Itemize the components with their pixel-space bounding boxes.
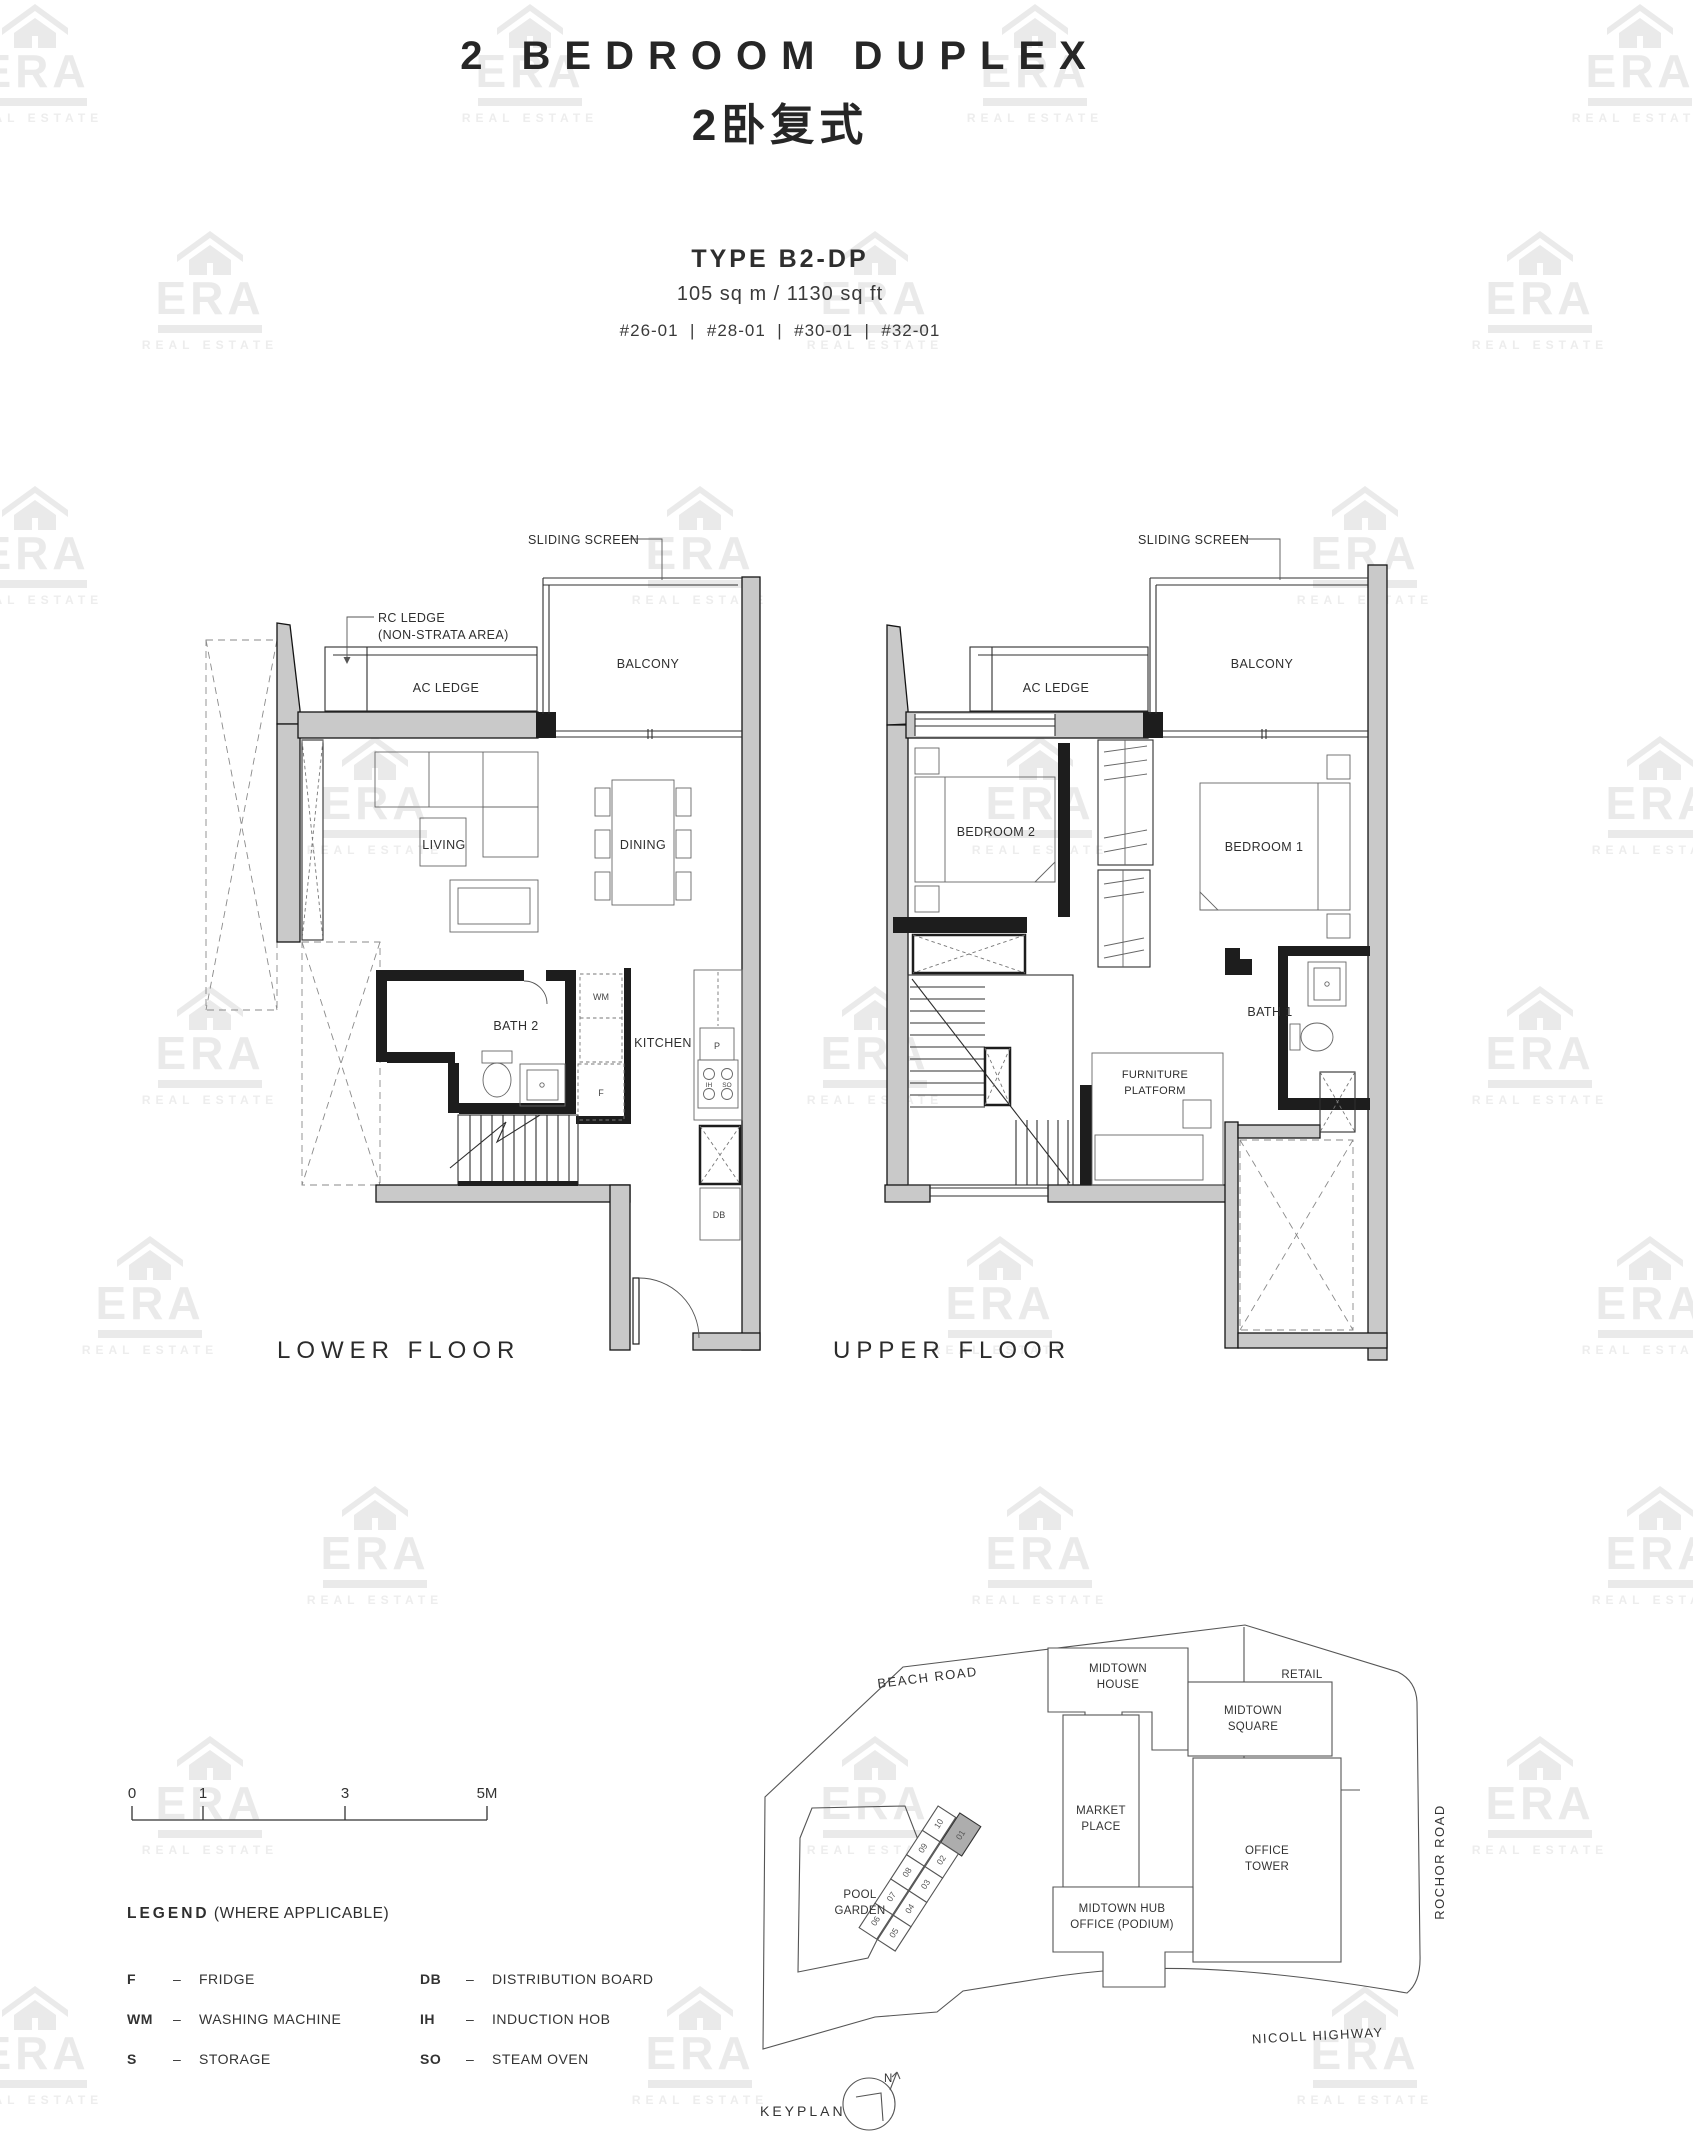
legend-label: WASHING MACHINE [199,2011,341,2027]
storage-void-box [913,935,1025,973]
upper-void [1240,1140,1353,1330]
era-watermark-brand: ERA [0,530,110,576]
era-house-icon [1627,1486,1693,1530]
label-wm: WM [593,992,609,1002]
residential-tower-units: 10 09 08 07 06 01 02 03 04 05 [859,1801,981,1953]
label-so: SO [722,1082,731,1089]
scale-tick-1: 1 [199,1785,207,1802]
page-title: 2 BEDROOM DUPLEX [0,34,1560,79]
legend-label: INDUCTION HOB [492,2011,611,2027]
scale-bar-line [132,1806,487,1820]
legend-title: LEGEND (WHERE APPLICABLE) [127,1905,727,1923]
label-pantry: P [714,1041,720,1051]
legend-item-storage: S–STORAGE [127,2039,420,2079]
era-watermark: ERAREAL ESTATE [0,1986,110,2107]
label-market-place-2: PLACE [1081,1821,1120,1833]
label-midtown-square-2: SQUARE [1228,1721,1278,1733]
label-pool-garden-2: GARDEN [834,1905,885,1917]
era-watermark-tagline: REAL ESTATE [1565,111,1693,125]
scale-bar: 0 1 3 5M [118,1782,498,1827]
era-house-icon [177,1736,243,1780]
era-watermark-bar [0,580,87,588]
label-beach-road: BEACH ROAD [877,1664,979,1691]
stairs-lower [450,1115,578,1186]
label-market-place-1: MARKET [1076,1805,1126,1817]
era-watermark-bar [1608,830,1693,838]
label-living: LIVING [422,838,465,852]
era-watermark-brand: ERA [1575,1280,1693,1326]
legend-dash: – [466,1971,492,1987]
building-market-place [1063,1715,1139,1887]
era-house-icon [1607,4,1673,48]
label-bath1: BATH 1 [1247,1005,1292,1019]
era-watermark: ERAREAL ESTATE [0,486,110,607]
era-watermark-bar [98,1330,202,1338]
legend-dash: – [173,2051,199,2067]
label-furniture-platform-1: FURNITURE [1122,1069,1188,1081]
era-watermark: ERAREAL ESTATE [1575,1236,1693,1357]
label-bedroom2: BEDROOM 2 [957,825,1036,839]
label-retail: RETAIL [1281,1669,1323,1681]
legend-dash: – [466,2051,492,2067]
era-house-icon [1007,1486,1073,1530]
era-watermark-tagline: REAL ESTATE [1575,1343,1693,1357]
era-watermark-tagline: REAL ESTATE [1465,1093,1615,1107]
scale-tick-0: 0 [128,1785,136,1802]
era-watermark-brand: ERA [0,2030,110,2076]
closet-shaft [302,740,323,940]
scale-tick-3: 3 [341,1785,349,1802]
lower-walls [277,577,760,1350]
label-midtown-house-2: HOUSE [1097,1679,1139,1691]
legend-item-fridge: F–FRIDGE [127,1959,420,1999]
era-watermark: ERAREAL ESTATE [1465,986,1615,1107]
keyplan: 10 09 08 07 06 01 02 03 04 05 MIDTOWN HO… [750,1600,1693,2153]
label-dining: DINING [620,838,666,852]
era-watermark-bar [323,1580,427,1588]
era-house-icon [2,486,68,530]
legend-label: STEAM OVEN [492,2051,589,2067]
lower-annotations [344,539,663,664]
era-watermark-tagline: REAL ESTATE [300,1593,450,1607]
label-ac-ledge-lower: AC LEDGE [413,681,479,695]
label-bath2: BATH 2 [493,1019,538,1033]
era-house-icon [1627,736,1693,780]
entrance-door [633,1278,699,1344]
label-sliding-screen-lower: SLIDING SCREEN [528,533,639,547]
era-watermark: ERAREAL ESTATE [965,1486,1115,1607]
wardrobes [1098,740,1153,967]
building-midtown-square [1188,1682,1332,1756]
legend-subtitle: (WHERE APPLICABLE) [214,1905,389,1922]
legend-abbr: F [127,1971,173,1987]
era-watermark-brand: ERA [1565,48,1693,94]
legend-item-so: SO–STEAM OVEN [420,2039,727,2079]
era-watermark-brand: ERA [1585,780,1693,826]
label-db: DB [713,1210,726,1220]
legend-abbr: SO [420,2051,466,2067]
label-rochor-road: ROCHOR ROAD [1432,1804,1447,1919]
services-shaft [700,1126,740,1240]
bath1-walls-fixtures [1225,946,1370,1110]
unit-area: 105 sq m / 1130 sq ft [0,283,1560,306]
building-office-tower [1193,1758,1341,1962]
upper-ac-ledge [970,647,1148,711]
upper-floor-plan: SLIDING SCREEN AC LEDGE BALCONY BEDROOM … [820,520,1400,1370]
label-sliding-screen-upper: SLIDING SCREEN [1138,533,1249,547]
era-house-icon [1507,986,1573,1030]
scale-tick-5m: 5M [477,1785,498,1802]
era-watermark-brand: ERA [965,1530,1115,1576]
legend-dash: – [173,1971,199,1987]
era-house-icon [2,1986,68,2030]
label-office-tower-1: OFFICE [1245,1845,1289,1857]
bath2-fixtures [482,1051,565,1106]
era-watermark: ERAREAL ESTATE [1585,736,1693,857]
unit-numbers: #26-01 | #28-01 | #30-01 | #32-01 [0,321,1560,341]
era-watermark-tagline: REAL ESTATE [1585,843,1693,857]
era-watermark-bar [158,1830,262,1838]
era-watermark-bar [648,2080,752,2088]
label-midtown-hub-1: MIDTOWN HUB [1079,1903,1166,1915]
era-watermark-bar [1608,1580,1693,1588]
floorplan-brochure-page: { "header": { "title": "2 BEDROOM DUPLEX… [0,0,1693,2153]
label-balcony-lower: BALCONY [617,657,680,671]
label-midtown-house-1: MIDTOWN [1089,1663,1147,1675]
legend-item-ih: IH–INDUCTION HOB [420,1999,727,2039]
label-kitchen: KITCHEN [634,1036,692,1050]
label-bedroom1: BEDROOM 1 [1225,840,1304,854]
label-midtown-square-1: MIDTOWN [1224,1705,1282,1717]
unit-type: TYPE B2-DP [0,245,1560,274]
legend-label: FRIDGE [199,1971,255,1987]
label-balcony-upper: BALCONY [1231,657,1294,671]
label-furniture-platform-2: PLATFORM [1124,1085,1185,1097]
era-watermark-brand: ERA [300,1530,450,1576]
era-house-icon [1617,1236,1683,1280]
legend-item-db: DB–DISTRIBUTION BOARD [420,1959,727,1999]
legend-item-wm: WM–WASHING MACHINE [127,1999,420,2039]
era-watermark-brand: ERA [1465,1030,1615,1076]
era-watermark-brand: ERA [1585,1530,1693,1576]
label-rc-ledge: RC LEDGE [378,611,445,625]
lower-floor-title: LOWER FLOOR [277,1337,520,1364]
page-title-chinese: 2卧复式 [0,89,1560,153]
era-watermark-bar [1488,1080,1592,1088]
era-watermark-tagline: REAL ESTATE [0,593,110,607]
era-house-icon [342,1486,408,1530]
building-midtown-hub [1053,1887,1193,1987]
legend-abbr: IH [420,2011,466,2027]
legend-items: F–FRIDGE DB–DISTRIBUTION BOARD WM–WASHIN… [127,1959,727,2079]
legend-abbr: S [127,2051,173,2067]
label-pool-garden-1: POOL [843,1889,876,1901]
era-watermark-tagline: REAL ESTATE [0,2093,110,2107]
era-watermark-bar [988,1580,1092,1588]
era-house-icon [117,1236,183,1280]
legend: LEGEND (WHERE APPLICABLE) F–FRIDGE DB–DI… [127,1905,727,2079]
legend-title-text: LEGEND [127,1905,210,1922]
legend-label: STORAGE [199,2051,271,2067]
era-watermark-bar [1588,98,1692,106]
lower-floor-plan: SLIDING SCREEN RC LEDGE (NON-STRATA AREA… [200,520,770,1370]
legend-abbr: WM [127,2011,173,2027]
era-watermark: ERAREAL ESTATE [1565,4,1693,125]
era-watermark: ERAREAL ESTATE [300,1486,450,1607]
label-midtown-hub-2: OFFICE (PODIUM) [1070,1919,1174,1931]
legend-label: DISTRIBUTION BOARD [492,1971,653,1987]
lower-ledges [325,647,537,711]
legend-abbr: DB [420,1971,466,1987]
label-ih: IH [706,1082,713,1089]
upper-walls [885,565,1387,1360]
era-watermark-tagline: REAL ESTATE [135,1843,285,1857]
era-watermark-bar [1598,1330,1693,1338]
label-ac-ledge-upper: AC LEDGE [1023,681,1089,695]
label-rc-ledge-2: (NON-STRATA AREA) [378,628,509,642]
keyplan-caption: KEYPLAN [760,2103,846,2119]
north-indicator: N [843,2072,900,2130]
upper-floor-title: UPPER FLOOR [833,1337,1071,1364]
north-letter: N [884,2073,893,2085]
era-watermark: ERAREAL ESTATE [1585,1486,1693,1607]
label-office-tower-2: TOWER [1245,1861,1289,1873]
legend-dash: – [466,2011,492,2027]
era-watermark-bar [0,2080,87,2088]
header: 2 BEDROOM DUPLEX 2卧复式 TYPE B2-DP 105 sq … [0,0,1560,341]
label-fridge: F [598,1088,604,1098]
label-nicoll-highway: NICOLL HIGHWAY [1252,2025,1384,2047]
legend-dash: – [173,2011,199,2027]
stairs-upper [908,975,1073,1196]
